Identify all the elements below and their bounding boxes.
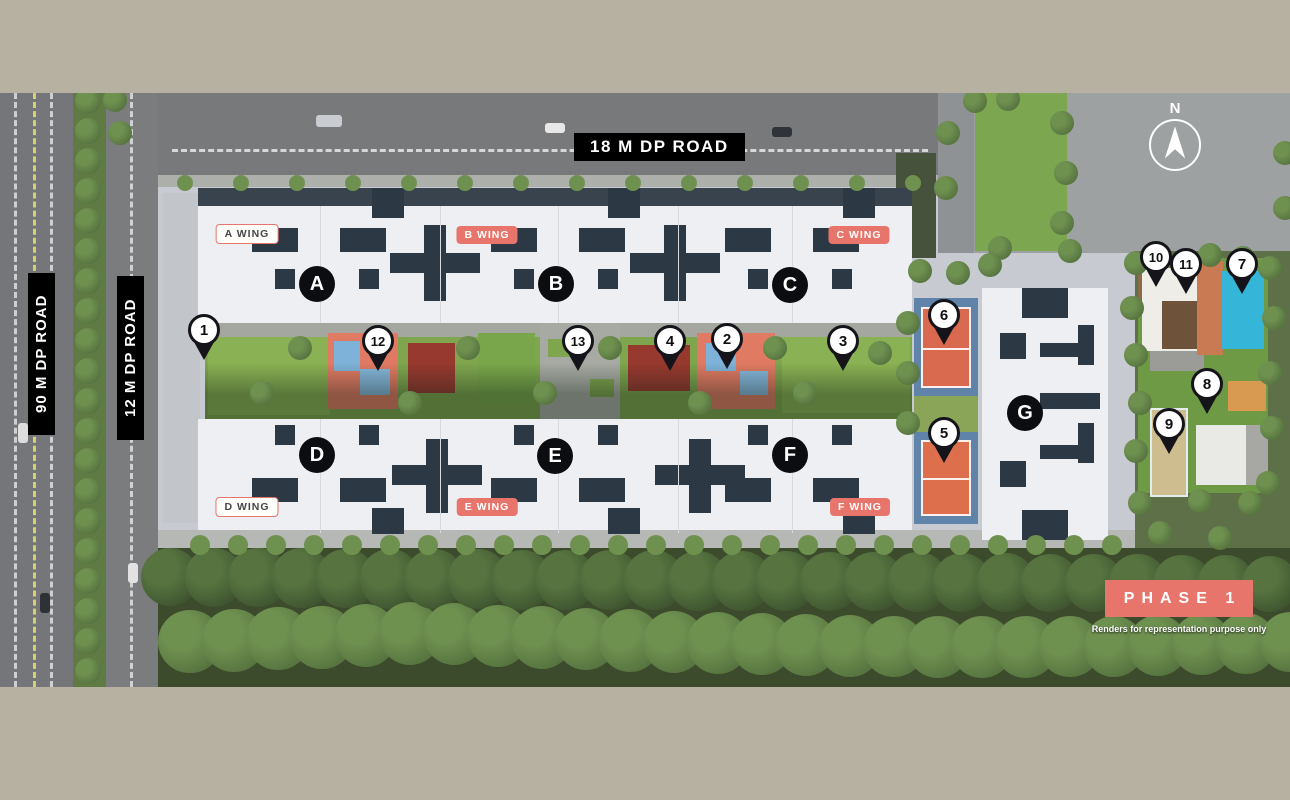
tree: [1273, 196, 1290, 220]
tree: [570, 535, 590, 555]
tree: [722, 535, 742, 555]
marker-number: 1: [188, 314, 220, 346]
tree: [946, 261, 970, 285]
wing-label-d: D WING: [215, 497, 278, 517]
scenery: [158, 93, 938, 175]
tree: [1148, 521, 1172, 545]
tree: [190, 535, 210, 555]
tree: [934, 176, 958, 200]
tree: [1262, 306, 1286, 330]
building-letter-b: B: [538, 266, 574, 302]
marker-number: 10: [1140, 241, 1172, 273]
tree: [456, 535, 476, 555]
scenery: [198, 206, 912, 323]
tree: [1208, 526, 1232, 550]
amenity-marker-5: 5: [927, 417, 961, 463]
tree: [233, 175, 249, 191]
wing-label-a: A WING: [216, 224, 279, 244]
tree: [978, 253, 1002, 277]
scenery: [938, 93, 974, 253]
scenery: [748, 269, 768, 289]
building-letter-d: D: [299, 437, 335, 473]
tree: [75, 358, 101, 384]
tree: [304, 535, 324, 555]
wing-label-e: E WING: [457, 498, 518, 516]
tree: [401, 175, 417, 191]
building-letter-c: C: [772, 267, 808, 303]
scenery: [340, 228, 386, 252]
tree: [342, 535, 362, 555]
tree: [289, 175, 305, 191]
tree: [988, 535, 1008, 555]
tree: [1260, 416, 1284, 440]
tree: [75, 238, 101, 264]
amenity-marker-12: 12: [361, 325, 395, 371]
marker-number: 13: [562, 325, 594, 357]
scenery: [792, 206, 793, 323]
scenery: [198, 419, 912, 533]
scenery: [359, 425, 379, 445]
building-letter-e: E: [537, 438, 573, 474]
tree: [1238, 491, 1262, 515]
tree: [896, 361, 920, 385]
tree: [1064, 535, 1084, 555]
tree: [533, 381, 557, 405]
amenity-marker-9: 9: [1152, 408, 1186, 454]
tree: [598, 336, 622, 360]
tree: [457, 175, 473, 191]
marker-number: 9: [1153, 408, 1185, 440]
tree: [793, 381, 817, 405]
scenery: [1078, 325, 1094, 365]
tree: [75, 568, 101, 594]
tree: [75, 538, 101, 564]
tree: [646, 535, 666, 555]
scenery: [558, 206, 559, 323]
site-plan-page: 18 M DP ROAD 90 M DP ROAD 12 M DP ROAD N…: [0, 0, 1290, 800]
tree: [1258, 256, 1282, 280]
tree: [108, 121, 132, 145]
scenery: [1196, 425, 1246, 485]
scenery: [275, 269, 295, 289]
scenery: [372, 508, 404, 534]
scenery: [514, 269, 534, 289]
marker-number: 7: [1226, 248, 1258, 280]
tree: [763, 336, 787, 360]
site-plan-render: 18 M DP ROAD 90 M DP ROAD 12 M DP ROAD N…: [0, 93, 1290, 687]
scenery: [832, 425, 852, 445]
tree: [513, 175, 529, 191]
tree: [681, 175, 697, 191]
vehicle: [772, 127, 792, 137]
vehicle: [316, 115, 342, 127]
tree: [532, 535, 552, 555]
scenery: [608, 188, 640, 218]
tree: [75, 658, 101, 684]
scenery: [608, 508, 640, 534]
amenity-marker-2: 2: [710, 323, 744, 369]
scenery: [320, 419, 321, 533]
tree: [1050, 111, 1074, 135]
lane-marking: [14, 93, 17, 687]
tree: [737, 175, 753, 191]
scenery: [1040, 445, 1080, 459]
scenery: [440, 206, 441, 323]
scenery: [725, 228, 771, 252]
marker-number: 2: [711, 323, 743, 355]
scenery: [689, 439, 711, 513]
marker-number: 5: [928, 417, 960, 449]
scenery: [1078, 423, 1094, 463]
tree: [456, 336, 480, 360]
scenery: [792, 419, 793, 533]
tree: [177, 175, 193, 191]
tree: [1273, 141, 1290, 165]
tree: [75, 388, 101, 414]
scenery: [426, 439, 448, 513]
scenery: [579, 228, 625, 252]
road-label-12m: 12 M DP ROAD: [117, 276, 144, 440]
scenery: [1000, 461, 1026, 487]
tree: [75, 448, 101, 474]
lane-marking: [172, 149, 928, 152]
tree: [912, 535, 932, 555]
tree: [868, 341, 892, 365]
scenery: [579, 478, 625, 502]
tree: [75, 148, 101, 174]
scenery: [340, 478, 386, 502]
building-letter-g: G: [1007, 395, 1043, 431]
tree: [418, 535, 438, 555]
scenery: [664, 225, 686, 301]
compass-n-label: N: [1147, 101, 1203, 117]
tree: [688, 391, 712, 415]
north-compass: N: [1147, 101, 1203, 171]
scenery: [1040, 393, 1100, 409]
tree: [266, 535, 286, 555]
tree: [1124, 343, 1148, 367]
tree: [836, 535, 856, 555]
tree: [760, 535, 780, 555]
tree: [1124, 439, 1148, 463]
marker-number: 4: [654, 325, 686, 357]
tree: [75, 178, 101, 204]
scenery: [1022, 288, 1068, 318]
tree: [1188, 489, 1212, 513]
road-label-18m: 18 M DP ROAD: [574, 133, 745, 161]
tree: [569, 175, 585, 191]
vehicle: [18, 423, 28, 443]
tree: [75, 268, 101, 294]
tree: [1128, 491, 1152, 515]
tree: [1050, 211, 1074, 235]
vehicle: [545, 123, 565, 133]
tree: [1120, 296, 1144, 320]
tree: [1256, 471, 1280, 495]
building-letter-f: F: [772, 437, 808, 473]
scenery: [514, 425, 534, 445]
disclaimer-text: Renders for representation purpose only: [1090, 624, 1268, 634]
amenity-marker-11: 11: [1169, 248, 1203, 294]
amenity-marker-8: 8: [1190, 368, 1224, 414]
scenery: [598, 269, 618, 289]
tree: [1054, 161, 1078, 185]
tree: [1258, 361, 1282, 385]
tree: [75, 208, 101, 234]
amenity-marker-6: 6: [927, 299, 961, 345]
tree: [936, 121, 960, 145]
tree: [625, 175, 641, 191]
tree: [896, 411, 920, 435]
tree: [798, 535, 818, 555]
phase-1-badge: PHASE 1: [1105, 580, 1253, 617]
scenery: [424, 225, 446, 301]
scenery: [1228, 381, 1266, 411]
scenery: [678, 206, 679, 323]
scenery: [198, 188, 912, 208]
tree: [75, 118, 101, 144]
tree: [1026, 535, 1046, 555]
tree: [398, 391, 422, 415]
tree: [228, 535, 248, 555]
vehicle: [40, 593, 50, 613]
tree: [874, 535, 894, 555]
tree: [75, 328, 101, 354]
scenery: [598, 425, 618, 445]
scenery: [275, 425, 295, 445]
marker-number: 11: [1170, 248, 1202, 280]
tree: [1102, 535, 1122, 555]
wing-label-f: F WING: [830, 498, 890, 516]
scenery: [725, 478, 771, 502]
compass-arrow-icon: [1149, 119, 1201, 171]
scenery: [372, 188, 404, 218]
scenery: [1000, 333, 1026, 359]
scenery: [359, 269, 379, 289]
marker-number: 3: [827, 325, 859, 357]
amenity-marker-7: 7: [1225, 248, 1259, 294]
marker-number: 6: [928, 299, 960, 331]
amenity-marker-1: 1: [187, 314, 221, 360]
amenity-marker-3: 3: [826, 325, 860, 371]
scenery: [1040, 343, 1080, 357]
tree: [75, 598, 101, 624]
tree: [288, 336, 312, 360]
scenery: [1022, 510, 1068, 540]
marker-number: 12: [362, 325, 394, 357]
tree: [908, 259, 932, 283]
tree: [896, 311, 920, 335]
wing-label-b: B WING: [456, 226, 517, 244]
tree: [380, 535, 400, 555]
tree: [849, 175, 865, 191]
scenery: [832, 269, 852, 289]
building-letter-a: A: [299, 266, 335, 302]
marker-number: 8: [1191, 368, 1223, 400]
road-label-90m: 90 M DP ROAD: [28, 273, 55, 435]
tree: [793, 175, 809, 191]
scenery: [748, 425, 768, 445]
tree: [250, 381, 274, 405]
scenery: [320, 206, 321, 323]
tree: [684, 535, 704, 555]
wing-label-c: C WING: [828, 226, 889, 244]
tree: [75, 418, 101, 444]
tree: [1128, 391, 1152, 415]
tree: [608, 535, 628, 555]
vehicle: [128, 563, 138, 583]
amenity-marker-10: 10: [1139, 241, 1173, 287]
scenery: [158, 175, 938, 187]
tree: [494, 535, 514, 555]
tree: [950, 535, 970, 555]
tree: [905, 175, 921, 191]
scenery: [440, 419, 441, 533]
scenery: [678, 419, 679, 533]
tree: [75, 298, 101, 324]
amenity-marker-4: 4: [653, 325, 687, 371]
amenity-marker-13: 13: [561, 325, 595, 371]
scenery: [558, 419, 559, 533]
tree: [75, 508, 101, 534]
tree: [75, 478, 101, 504]
tree: [1058, 239, 1082, 263]
scenery: [843, 188, 875, 218]
scenery: [1162, 301, 1202, 349]
tree: [75, 628, 101, 654]
tree: [345, 175, 361, 191]
